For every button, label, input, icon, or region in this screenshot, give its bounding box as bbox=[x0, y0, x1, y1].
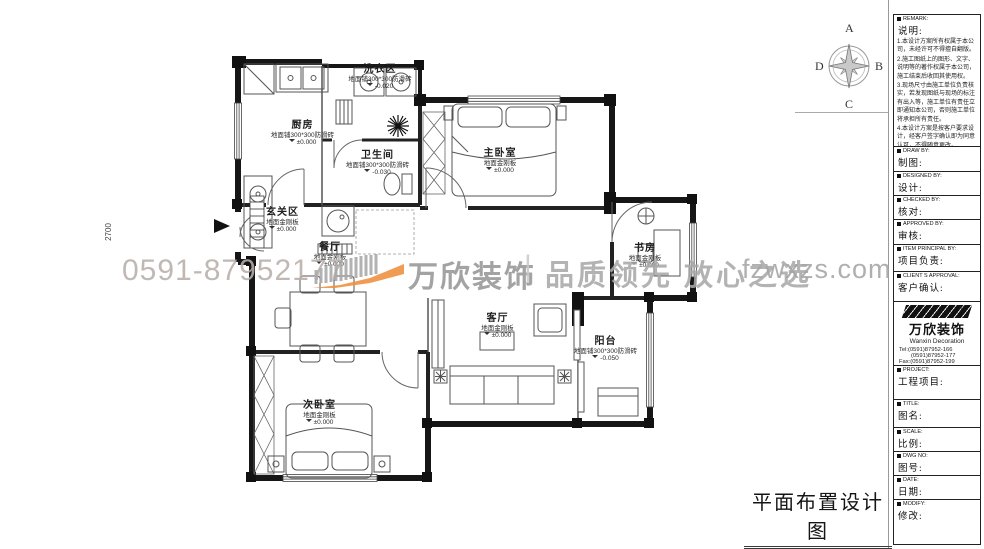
section-marker-icon bbox=[897, 174, 901, 178]
titleblock-section-designed: DESIGNED BY: 设计: bbox=[894, 172, 980, 196]
note-line: 3.现场尺寸由施工单位负责核实，若发现图纸与现场的标注有出入等，施工单位有责任立… bbox=[897, 82, 977, 124]
section-marker-icon bbox=[897, 222, 901, 226]
section-label-zh: 客户确认: bbox=[898, 280, 977, 294]
room-name: 次卧室 bbox=[272, 400, 367, 412]
room-floor-spec: 地面金刚板 bbox=[272, 412, 367, 419]
room-floor-spec: 地面铺300*300防滑砖 bbox=[330, 162, 425, 169]
note-line: 4.本设计方案是按客户要求设计，经客户签字确认即为同意认可，不得随意更改。 bbox=[897, 125, 977, 147]
company-logo-icon: ® bbox=[902, 305, 972, 318]
room-name: 卫生间 bbox=[330, 150, 425, 162]
section-label-zh: 工程项目: bbox=[898, 374, 977, 388]
section-label-en: SCALE: bbox=[903, 429, 923, 435]
room-label-balcony: 阳台 地面铺300*300防滑砖 -0.050 bbox=[558, 336, 653, 362]
section-marker-icon bbox=[897, 454, 901, 458]
section-label-en: MODIFY: bbox=[903, 501, 926, 507]
room-floor-spec: 地面铺300*300防滑砖 bbox=[330, 76, 430, 83]
section-marker-icon bbox=[897, 247, 901, 251]
room-name: 主卧室 bbox=[455, 148, 545, 160]
section-label-zh: 核对: bbox=[898, 204, 977, 218]
titleblock-section-dwgno: DWG NO: 图号: bbox=[894, 452, 980, 476]
section-label-en: DRAW BY: bbox=[903, 148, 930, 154]
section-label-en: REMARK: bbox=[903, 16, 928, 22]
compass-west-label: D bbox=[815, 59, 824, 73]
titleblock-section-remark: REMARK: 说明: 1.本设计方案所有权属于本公司，未经许可不得擅自翻版。 … bbox=[894, 15, 980, 147]
elevation-mark-icon bbox=[592, 355, 598, 361]
room-label-master-bedroom: 主卧室 地面金刚板 ±0.000 bbox=[455, 148, 545, 174]
section-label-en: DWG NO: bbox=[903, 453, 928, 459]
section-label-zh: 项目负责: bbox=[898, 253, 977, 267]
room-floor-spec: 地面铺300*300防滑砖 bbox=[255, 132, 350, 139]
compass-south-label: C bbox=[845, 97, 853, 111]
room-level: -0.050 bbox=[600, 355, 618, 362]
section-marker-icon bbox=[897, 502, 901, 506]
titleblock-section-principal: ITEM PRINCIPAL BY: 项目负责: bbox=[894, 245, 980, 272]
room-floor-spec: 地面金刚板 bbox=[240, 219, 325, 226]
section-marker-icon bbox=[897, 274, 901, 278]
titleblock-section-client-approval: CLIENT S APPROVAL: 客户确认: bbox=[894, 272, 980, 302]
section-marker-icon bbox=[897, 17, 901, 21]
dimension-label: 2700 bbox=[104, 202, 113, 262]
section-label-en: PROJECT: bbox=[903, 367, 930, 373]
section-label-en: TITLE: bbox=[903, 401, 920, 407]
room-label-living: 客厅 地面金刚板 ±0.000 bbox=[455, 313, 540, 339]
section-marker-icon bbox=[897, 402, 901, 406]
room-level: ±0.000 bbox=[492, 332, 512, 339]
elevation-mark-icon bbox=[306, 419, 312, 425]
company-name: 万欣装饰 bbox=[897, 319, 977, 338]
section-marker-icon bbox=[897, 478, 901, 482]
remark-notes: 1.本设计方案所有权属于本公司，未经许可不得擅自翻版。 2.施工图纸上的图形、文… bbox=[897, 38, 977, 147]
section-label-zh: 修改: bbox=[898, 508, 977, 522]
room-label-bathroom: 卫生间 地面铺300*300防滑砖 -0.030 bbox=[330, 150, 425, 176]
room-floor-spec: 地面金刚板 bbox=[455, 160, 545, 167]
room-label-foyer: 玄关区 地面金刚板 ±0.000 bbox=[240, 207, 325, 233]
title-block: REMARK: 说明: 1.本设计方案所有权属于本公司，未经许可不得擅自翻版。 … bbox=[893, 14, 981, 545]
registered-mark: ® bbox=[958, 306, 964, 312]
note-line: 1.本设计方案所有权属于本公司，未经许可不得擅自翻版。 bbox=[897, 38, 977, 55]
section-label-en: CLIENT S APPROVAL: bbox=[903, 273, 960, 279]
watermark-logo-text: 万欣装饰 bbox=[408, 252, 536, 296]
titleblock-section-scale: SCALE: 比例: bbox=[894, 428, 980, 452]
titleblock-section-title: TITLE: 图名: bbox=[894, 400, 980, 428]
room-level: ±0.000 bbox=[314, 419, 334, 426]
compass-icon: A B C D bbox=[813, 18, 885, 114]
section-label-zh: 设计: bbox=[898, 180, 977, 194]
elevation-mark-icon bbox=[367, 83, 373, 89]
titleblock-section-date: DATE: 日期: bbox=[894, 476, 980, 500]
watermark-separator: | bbox=[524, 250, 532, 284]
section-label-zh: 比例: bbox=[898, 436, 977, 450]
section-label-zh: 制图: bbox=[898, 155, 977, 169]
section-label-en: ITEM PRINCIPAL BY: bbox=[903, 246, 956, 252]
room-name: 玄关区 bbox=[240, 207, 325, 219]
watermark-logo-icon bbox=[310, 250, 406, 290]
room-level: ±0.000 bbox=[297, 139, 317, 146]
titleblock-company: ® 万欣装饰 Wanxin Decoration Tel:(0591)87952… bbox=[894, 302, 980, 366]
room-floor-spec: 地面金刚板 bbox=[455, 325, 540, 332]
section-label-zh: 说明: bbox=[898, 23, 977, 37]
elevation-mark-icon bbox=[486, 167, 492, 173]
elevation-mark-icon bbox=[269, 226, 275, 232]
section-marker-icon bbox=[897, 430, 901, 434]
room-label-laundry: 洗衣区 地面铺300*300防滑砖 -0.020 bbox=[330, 64, 430, 90]
room-name: 客厅 bbox=[455, 313, 540, 325]
compass-north-label: A bbox=[845, 21, 854, 35]
entry-arrow-icon bbox=[214, 219, 230, 233]
room-floor-spec: 地面铺300*300防滑砖 bbox=[558, 348, 653, 355]
watermark-website: fzwxzs.com bbox=[742, 254, 892, 285]
room-name: 洗衣区 bbox=[330, 64, 430, 76]
floor-plan-sheet: 洗衣区 地面铺300*300防滑砖 -0.020 厨房 地面铺300*300防滑… bbox=[0, 0, 984, 549]
room-level: -0.030 bbox=[372, 169, 390, 176]
section-marker-icon bbox=[897, 149, 901, 153]
section-label-zh: 图号: bbox=[898, 460, 977, 474]
room-name: 厨房 bbox=[255, 120, 350, 132]
sink-icon bbox=[280, 67, 301, 89]
compass-east-label: B bbox=[875, 59, 883, 73]
section-label-zh: 图名: bbox=[898, 408, 977, 422]
titleblock-section-checked: CHECKED BY: 核对: bbox=[894, 196, 980, 220]
fan-icon bbox=[387, 115, 409, 137]
drawing-title: 平面布置设计图 bbox=[744, 486, 892, 549]
section-label-zh: 审核: bbox=[898, 228, 977, 242]
room-level: ±0.000 bbox=[277, 226, 297, 233]
titleblock-section-draw: DRAW BY: 制图: bbox=[894, 147, 980, 172]
elevation-mark-icon bbox=[289, 139, 295, 145]
elevation-mark-icon bbox=[484, 332, 490, 338]
section-marker-icon bbox=[897, 198, 901, 202]
room-level: ±0.000 bbox=[494, 167, 514, 174]
section-label-en: APPROVED BY: bbox=[903, 221, 944, 227]
section-label-en: DESIGNED BY: bbox=[903, 173, 942, 179]
titleblock-section-project: PROJECT: 工程项目: bbox=[894, 366, 980, 400]
section-label-zh: 日期: bbox=[898, 484, 977, 498]
section-label-en: CHECKED BY: bbox=[903, 197, 940, 203]
room-label-second-bedroom: 次卧室 地面金刚板 ±0.000 bbox=[272, 400, 367, 426]
note-line: 2.施工图纸上的图形、文字、说明等的著作权属于本公司，施工结束后收回其使用权。 bbox=[897, 56, 977, 81]
section-label-en: DATE: bbox=[903, 477, 919, 483]
room-level: -0.020 bbox=[375, 83, 393, 90]
titleblock-section-approved: APPROVED BY: 审核: bbox=[894, 220, 980, 245]
titleblock-section-modify: MODIFY: 修改: bbox=[894, 500, 980, 544]
company-name-en: Wanxin Decoration bbox=[897, 338, 977, 345]
room-name: 阳台 bbox=[558, 336, 653, 348]
section-marker-icon bbox=[897, 368, 901, 372]
elevation-mark-icon bbox=[364, 169, 370, 175]
room-label-kitchen: 厨房 地面铺300*300防滑砖 ±0.000 bbox=[255, 120, 350, 146]
